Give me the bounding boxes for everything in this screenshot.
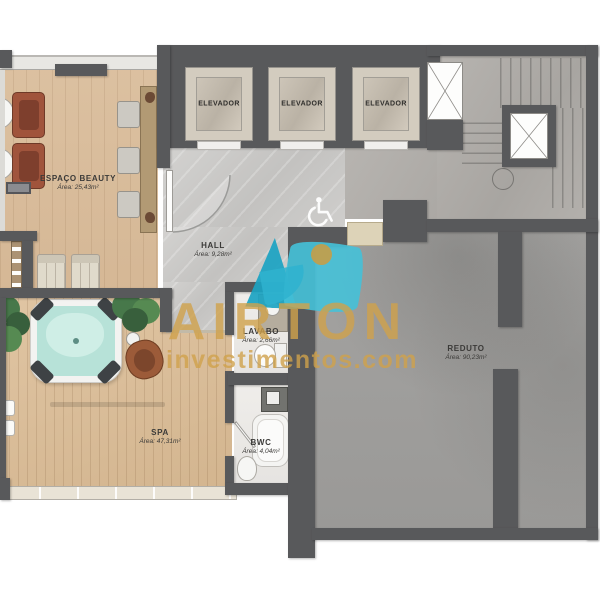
spa-threshold-line [166,330,225,333]
lavabo-area: Área: 2,66m² [242,337,280,345]
bwc-area: Área: 4,04m² [242,448,280,456]
stair-top-wall [427,45,598,56]
manicure-counter [140,86,157,233]
spa-name: SPA [139,428,180,438]
bwc-toilet [237,456,257,481]
hall-label: HALL Área: 9,28m² [194,241,232,259]
beauty-room-label: ESPAÇO BEAUTY Área: 25,43m² [40,174,116,192]
reduto-left-wall [288,247,315,558]
deck-mat-shadow [50,402,165,407]
manicure-chair-1 [117,101,140,128]
duct-shaft-2 [510,113,548,159]
spa-area: Área: 47,31m² [139,438,180,446]
stair-landing-mark [492,168,514,190]
beauty-corner-wall [0,50,12,68]
elevator-threshold-1 [197,141,241,150]
terrace-spa-wall [0,288,172,298]
reduto-name: REDUTO [445,344,486,354]
outer-right-wall [586,45,598,540]
reduto-internal-wall-a [498,232,522,327]
beauty-right-wall [157,45,170,168]
spa-window-band [0,486,237,500]
bwc-sink [266,391,280,405]
lavabo-left-wall [225,292,234,335]
beauty-room-area: Área: 25,43m² [40,184,116,192]
elevator-label-2: ELEVADOR [269,101,335,108]
duct-wall-stub [427,120,463,150]
elevator-label-1: ELEVADOR [186,101,252,108]
hall-floor-extension [163,282,225,332]
beauty-spa-wall [0,231,37,241]
elevator-shaft-1: ELEVADOR [185,67,253,141]
elevator-threshold-3 [364,141,408,150]
reduto-label: REDUTO Área: 90,23m² [445,344,486,362]
hall-bottom-wall [288,227,347,247]
elevator-shaft-3: ELEVADOR [352,67,420,141]
elevator-shaft-2: ELEVADOR [268,67,336,141]
reduto-door-threshold [347,222,383,246]
reduto-floor [302,232,586,528]
spa-label: SPA Área: 47,31m² [139,428,180,446]
elevator-threshold-2 [280,141,324,150]
spa-corner-post [0,478,10,500]
stair-treads-top [500,58,584,108]
bwc-label: BWC Área: 4,04m² [242,438,280,456]
duct-shaft-1 [427,62,463,120]
reduto-bottom-wall [312,528,598,540]
lavabo-name: LAVABO [242,327,280,337]
spa-left-wall [0,298,6,486]
beauty-lintel [55,64,107,76]
styling-chair-red-2-seat [19,151,39,181]
lounge-chair-1 [37,254,66,291]
bwc-left-wall-lower [225,456,234,485]
jacuzzi-jet [73,338,79,344]
reduto-top-wall-run [427,219,598,232]
plant-center-3 [122,308,148,332]
reduto-area: Área: 90,23m² [445,354,486,362]
styling-chair-red-1-seat [19,100,39,130]
lavabo-toilet-bowl [254,344,276,367]
elevator-label-3: ELEVADOR [353,101,419,108]
manicure-chair-3 [117,191,140,218]
jacuzzi-seat [46,313,104,357]
beauty-left-frame [0,70,5,231]
hall-ext-left-wall [160,288,172,332]
bwc-name: BWC [242,438,280,448]
counter-plant-2 [145,212,155,223]
lavabo-sink [265,301,280,316]
towel-shelf [11,241,22,288]
manicure-chair-2 [117,147,140,174]
floor-plan: ELEVADOR ELEVADOR ELEVADOR [0,0,600,600]
stair-treads-right [552,108,584,208]
beauty-room-name: ESPAÇO BEAUTY [40,174,116,184]
terrace-stub-wall [22,241,33,290]
wheelchair-icon [304,194,338,228]
lounge-chair-2 [71,254,100,291]
hall-name: HALL [194,241,232,251]
hall-area: Área: 9,28m² [194,251,232,259]
reduto-top-wall-chunk [383,200,427,242]
lavabo-label: LAVABO Área: 2,66m² [242,327,280,345]
reduto-internal-wall-b [493,369,518,528]
beauty-door-swing-arc [168,170,232,234]
beauty-bench [6,182,31,194]
